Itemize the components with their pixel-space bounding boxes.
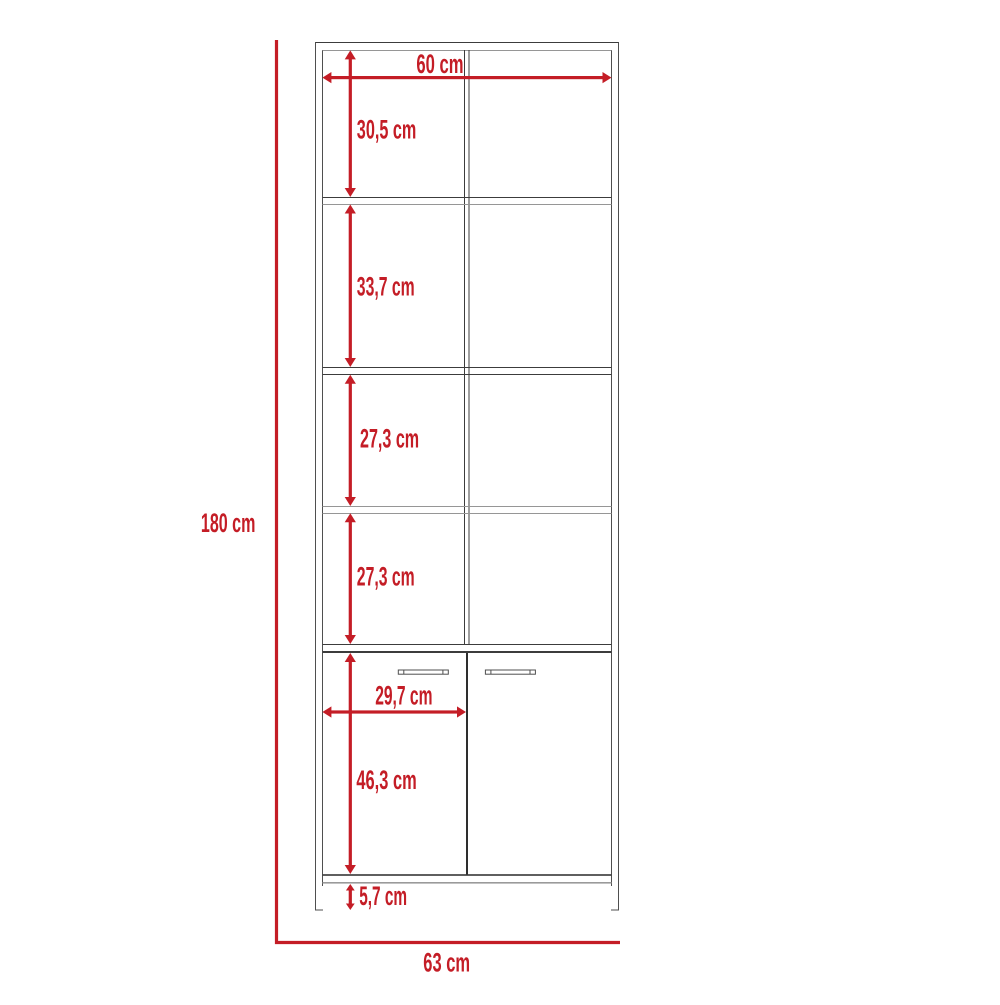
svg-text:63 cm: 63 cm: [423, 948, 470, 978]
svg-text:33,7 cm: 33,7 cm: [357, 272, 415, 302]
svg-text:46,3 cm: 46,3 cm: [356, 765, 416, 795]
svg-text:30,5 cm: 30,5 cm: [357, 115, 417, 145]
svg-text:27,3 cm: 27,3 cm: [357, 562, 415, 592]
svg-text:5,7 cm: 5,7 cm: [359, 881, 407, 911]
svg-text:27,3 cm: 27,3 cm: [360, 424, 419, 454]
svg-text:60 cm: 60 cm: [416, 49, 463, 79]
svg-text:180 cm: 180 cm: [201, 508, 256, 538]
svg-text:29,7 cm: 29,7 cm: [375, 681, 432, 711]
